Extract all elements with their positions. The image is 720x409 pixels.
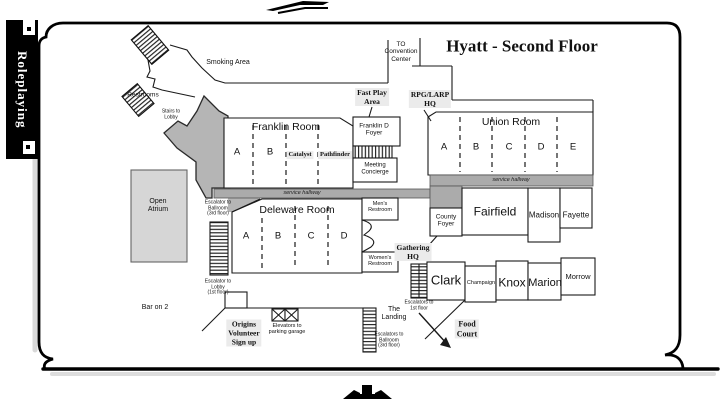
hallway-corner	[430, 186, 462, 208]
terrace-upper-wall	[170, 45, 388, 83]
service-hallway-label-2: service hallway	[492, 177, 529, 183]
gathering-hq-label: Gathering HQ	[395, 243, 432, 261]
franklin-section-b: B	[267, 148, 273, 159]
franklin-section-a: A	[234, 148, 240, 159]
catalyst-label: Catalyst	[286, 151, 313, 159]
bar-on-2-label: Bar on 2	[142, 304, 168, 312]
deleware-escalator-icon	[210, 222, 228, 275]
map-linework	[0, 0, 720, 409]
food-court-label: Food Court	[455, 319, 479, 338]
the-landing-label: The Landing	[382, 306, 407, 322]
floorplan	[122, 26, 595, 352]
stairs-smoking-icon	[131, 26, 168, 65]
elevators-parking-label: Elevators to parking garage	[269, 323, 306, 335]
fayette-shape	[560, 188, 592, 228]
marion-label: Marion	[528, 277, 562, 289]
fast-play-pointer	[369, 107, 372, 117]
county-foyer-label: County Foyer	[436, 214, 457, 229]
deleware-section-c: C	[308, 232, 315, 243]
food-court-arrow	[419, 313, 447, 344]
service-hallway-1	[214, 189, 430, 198]
franklin-d-foyer-label: Franklin D Foyer	[359, 123, 389, 138]
womens-restroom-label: Women's Restroom	[368, 255, 392, 267]
union-section-c: C	[506, 143, 513, 154]
smoking-area-label: Smoking Area	[206, 59, 250, 67]
restrooms-label: Restrooms	[127, 91, 158, 98]
open-atrium-label: Open Atrium	[148, 198, 168, 214]
parking-elevators-icon	[272, 309, 298, 321]
union-room-label: Union Room	[482, 117, 540, 129]
mens-restroom-label: Men's Restroom	[368, 201, 392, 213]
champaign-label: Champaign	[467, 280, 495, 286]
walk-edge-left	[202, 308, 225, 331]
stairs-lobby-icon	[122, 84, 154, 117]
deleware-section-b: B	[275, 232, 281, 243]
union-section-e: E	[570, 143, 576, 154]
stairs-to-lobby-label: Stairs to Lobby	[162, 109, 180, 120]
origins-volunteer-label: Origins Volunteer Sign up	[226, 320, 261, 347]
pathfinder-label: Pathfinder	[318, 151, 352, 159]
union-section-b: B	[473, 143, 479, 154]
deleware-room-label: Deleware Room	[259, 205, 334, 217]
bottom-crown-icon	[343, 385, 392, 399]
deleware-section-a: A	[243, 232, 249, 243]
fayette-label: Fayette	[563, 212, 590, 221]
restroom-alcove	[362, 220, 374, 252]
madison-label: Madison	[529, 212, 559, 221]
knox-label: Knox	[498, 276, 525, 289]
escalator-lobby-label: Escalator to Lobby (1st floor)	[205, 280, 231, 297]
union-section-d: D	[538, 143, 545, 154]
foyer-escalator-icon	[353, 146, 392, 158]
rpg-larp-hq-label: RPG/LARP HQ	[409, 90, 451, 108]
franklin-room-label: Franklin Room	[252, 122, 320, 134]
service-hallway-label-1: service hallway	[283, 190, 320, 196]
hyatt-second-floor-map: Roleplaying Hyatt - Second Floor Smoking…	[0, 0, 720, 409]
clark-label: Clark	[431, 274, 461, 289]
open-atrium-shape	[131, 170, 187, 262]
deleware-section-d: D	[341, 232, 348, 243]
escalators-1st-floor-label: Escalators to 1st floor	[405, 300, 434, 311]
fairfield-label: Fairfield	[474, 205, 517, 218]
union-section-a: A	[441, 143, 447, 154]
roleplaying-tab[interactable]: Roleplaying	[7, 26, 37, 154]
to-convention-center-label: TO Convention Center	[385, 41, 418, 63]
escalators-ballroom-label: Escalators to Ballroom (3rd floor)	[375, 333, 404, 350]
meeting-concierge-label: Meeting Concierge	[361, 162, 388, 175]
page-title: Hyatt - Second Floor	[446, 36, 598, 55]
escalator-ballroom-label: Escalator to Ballroom (3rd floor)	[205, 201, 231, 218]
morrow-label: Morrow	[565, 273, 590, 281]
fast-play-area-label: Fast Play Area	[355, 88, 389, 106]
